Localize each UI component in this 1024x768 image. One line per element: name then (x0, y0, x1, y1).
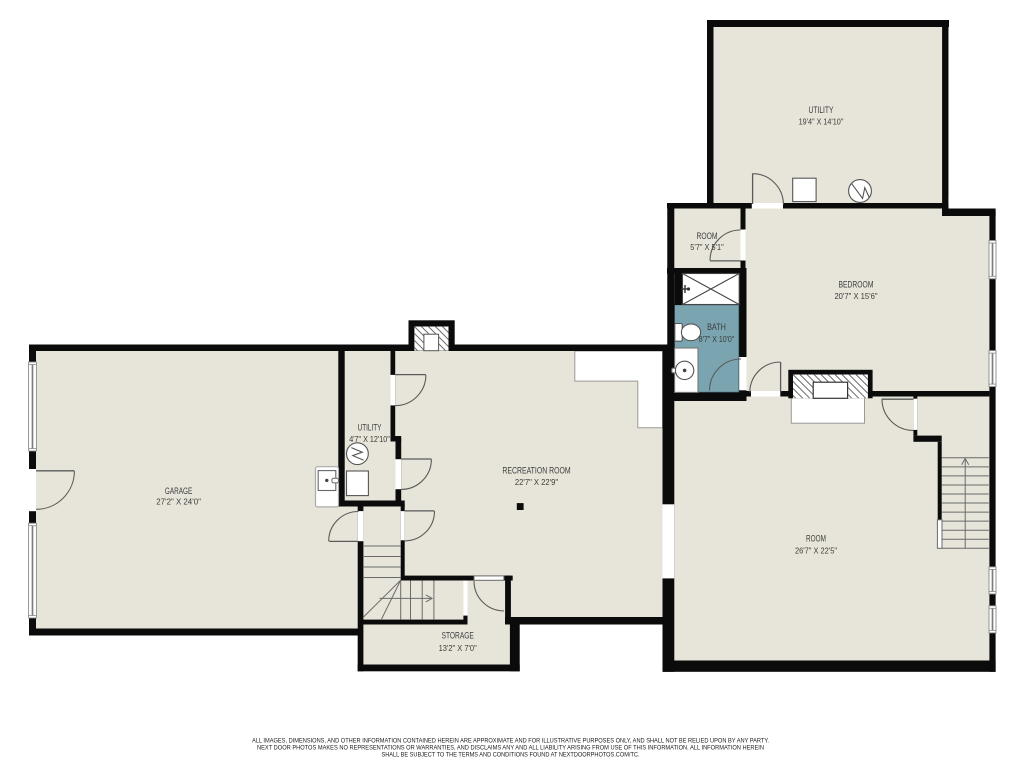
svg-text:13'2" X 7'0": 13'2" X 7'0" (439, 643, 477, 653)
svg-text:ROOM: ROOM (697, 231, 718, 241)
svg-text:GARAGE: GARAGE (165, 486, 192, 496)
svg-text:27'2" X 24'0": 27'2" X 24'0" (156, 497, 201, 507)
svg-text:20'7" X 15'6": 20'7" X 15'6" (834, 291, 877, 301)
svg-text:ROOM: ROOM (806, 534, 826, 544)
svg-text:19'4" X 14'10": 19'4" X 14'10" (799, 116, 844, 126)
svg-text:NEXT DOOR PHOTOS MAKES NO REPR: NEXT DOOR PHOTOS MAKES NO REPRESENTATION… (257, 745, 764, 752)
svg-text:22'7" X 22'9": 22'7" X 22'9" (515, 477, 558, 487)
svg-text:ALL IMAGES, DIMENSIONS, AND OT: ALL IMAGES, DIMENSIONS, AND OTHER INFORM… (252, 738, 769, 745)
svg-text:BEDROOM: BEDROOM (839, 280, 874, 290)
svg-text:STORAGE: STORAGE (442, 631, 474, 641)
svg-text:RECREATION ROOM: RECREATION ROOM (502, 465, 570, 475)
svg-text:5'7" X 5'1": 5'7" X 5'1" (690, 242, 723, 252)
svg-text:UTILITY: UTILITY (358, 423, 382, 433)
svg-text:SHALL BE SUBJECT TO THE TERMS: SHALL BE SUBJECT TO THE TERMS AND CONDIT… (382, 752, 640, 759)
svg-text:8'7" X 10'0": 8'7" X 10'0" (699, 334, 735, 344)
svg-text:UTILITY: UTILITY (809, 105, 834, 115)
svg-text:4'7" X 12'10": 4'7" X 12'10" (349, 434, 390, 444)
svg-text:26'7" X 22'5": 26'7" X 22'5" (795, 546, 837, 556)
svg-text:BATH: BATH (707, 322, 726, 332)
